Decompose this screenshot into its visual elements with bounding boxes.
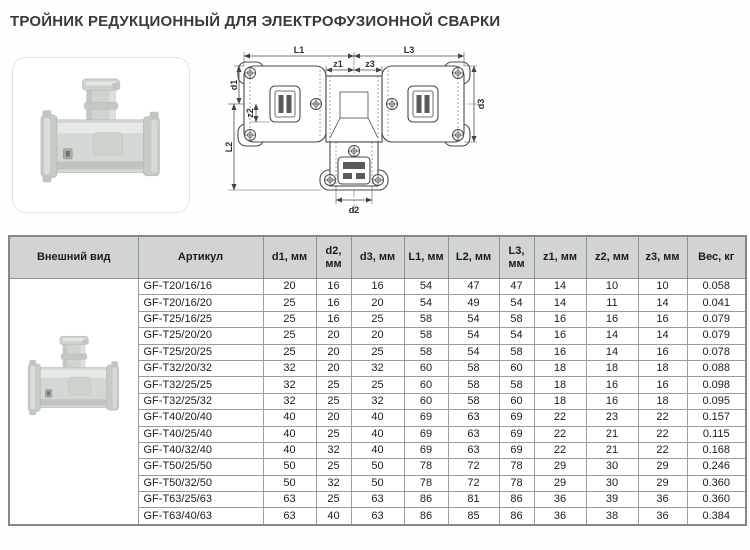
value-cell: 78 (404, 459, 448, 475)
column-header-article: Артикул (138, 236, 263, 279)
value-cell: 58 (404, 328, 448, 344)
value-cell: 25 (316, 393, 351, 409)
value-cell: 20 (316, 328, 351, 344)
value-cell: 16 (638, 311, 687, 327)
value-cell: 38 (586, 508, 638, 525)
value-cell: 36 (534, 508, 586, 525)
article-cell: GF-T63/40/63 (138, 508, 263, 525)
value-cell: 36 (534, 492, 586, 508)
value-cell: 49 (448, 295, 499, 311)
dim-label-z1: z1 (333, 59, 343, 69)
value-cell: 0.115 (687, 426, 746, 442)
product-photo-small (22, 333, 126, 425)
value-cell: 58 (404, 344, 448, 360)
value-cell: 63 (448, 426, 499, 442)
value-cell: 18 (586, 360, 638, 376)
value-cell: 63 (448, 410, 499, 426)
value-cell: 32 (316, 442, 351, 458)
value-cell: 16 (534, 311, 586, 327)
value-cell: 54 (448, 328, 499, 344)
value-cell: 32 (351, 393, 404, 409)
dim-label-l3: L3 (404, 46, 415, 55)
value-cell: 69 (404, 426, 448, 442)
value-cell: 25 (351, 344, 404, 360)
value-cell: 10 (586, 279, 638, 295)
value-cell: 29 (534, 459, 586, 475)
value-cell: 58 (499, 377, 534, 393)
value-cell: 50 (263, 459, 316, 475)
value-cell: 47 (448, 279, 499, 295)
value-cell: 25 (263, 344, 316, 360)
value-cell: 60 (404, 377, 448, 393)
value-cell: 25 (263, 328, 316, 344)
value-cell: 63 (263, 508, 316, 525)
value-cell: 16 (638, 377, 687, 393)
value-cell: 86 (404, 492, 448, 508)
value-cell: 69 (499, 426, 534, 442)
page-title: ТРОЙНИК РЕДУКЦИОННЫЙ ДЛЯ ЭЛЕКТРОФУЗИОННО… (10, 13, 500, 30)
value-cell: 30 (586, 475, 638, 491)
value-cell: 25 (316, 492, 351, 508)
table-row: GF-T20/16/162016165447471410100.058 (9, 279, 746, 295)
value-cell: 54 (448, 311, 499, 327)
value-cell: 29 (534, 475, 586, 491)
value-cell: 16 (316, 279, 351, 295)
value-cell: 72 (448, 459, 499, 475)
value-cell: 69 (499, 410, 534, 426)
technical-drawing: L1 L3 z1 z3 d1 z2 d3 L2 d2 (222, 46, 486, 218)
value-cell: 32 (351, 360, 404, 376)
table-body: GF-T20/16/162016165447471410100.058GF-T2… (9, 279, 746, 525)
value-cell: 58 (499, 311, 534, 327)
value-cell: 36 (638, 508, 687, 525)
dim-label-d2: d2 (349, 205, 360, 215)
value-cell: 14 (586, 344, 638, 360)
value-cell: 58 (448, 377, 499, 393)
value-cell: 18 (534, 360, 586, 376)
value-cell: 25 (316, 377, 351, 393)
value-cell: 32 (263, 377, 316, 393)
value-cell: 16 (586, 377, 638, 393)
value-cell: 20 (316, 344, 351, 360)
article-cell: GF-T20/16/20 (138, 295, 263, 311)
value-cell: 32 (263, 360, 316, 376)
value-cell: 22 (534, 410, 586, 426)
column-header-appearance: Внешний вид (9, 236, 138, 279)
value-cell: 16 (586, 311, 638, 327)
value-cell: 25 (351, 311, 404, 327)
value-cell: 21 (586, 426, 638, 442)
value-cell: 25 (263, 311, 316, 327)
column-header-l1: L1, мм (404, 236, 448, 279)
value-cell: 0.041 (687, 295, 746, 311)
value-cell: 32 (263, 393, 316, 409)
value-cell: 40 (351, 426, 404, 442)
value-cell: 21 (586, 442, 638, 458)
value-cell: 22 (638, 442, 687, 458)
value-cell: 36 (638, 492, 687, 508)
value-cell: 63 (448, 442, 499, 458)
value-cell: 16 (586, 393, 638, 409)
dim-label-d1: d1 (229, 80, 239, 91)
value-cell: 72 (448, 475, 499, 491)
product-photo-box (12, 57, 190, 213)
value-cell: 0.058 (687, 279, 746, 295)
dim-label-l2: L2 (224, 142, 234, 153)
value-cell: 16 (534, 328, 586, 344)
value-cell: 11 (586, 295, 638, 311)
value-cell: 0.360 (687, 492, 746, 508)
column-header-d2: d2, мм (316, 236, 351, 279)
article-cell: GF-T50/25/50 (138, 459, 263, 475)
value-cell: 60 (404, 360, 448, 376)
value-cell: 16 (316, 295, 351, 311)
value-cell: 50 (263, 475, 316, 491)
value-cell: 0.098 (687, 377, 746, 393)
value-cell: 60 (499, 393, 534, 409)
value-cell: 0.157 (687, 410, 746, 426)
value-cell: 40 (263, 410, 316, 426)
value-cell: 63 (351, 508, 404, 525)
value-cell: 54 (499, 295, 534, 311)
article-cell: GF-T50/32/50 (138, 475, 263, 491)
value-cell: 50 (351, 475, 404, 491)
dim-label-l1: L1 (294, 46, 305, 55)
value-cell: 20 (351, 295, 404, 311)
value-cell: 16 (534, 344, 586, 360)
value-cell: 40 (263, 442, 316, 458)
value-cell: 25 (316, 459, 351, 475)
value-cell: 54 (404, 295, 448, 311)
value-cell: 20 (263, 279, 316, 295)
value-cell: 32 (316, 475, 351, 491)
value-cell: 25 (263, 295, 316, 311)
dim-label-z2: z2 (245, 108, 255, 118)
value-cell: 50 (351, 459, 404, 475)
dim-label-d3: d3 (476, 99, 486, 110)
value-cell: 22 (638, 426, 687, 442)
value-cell: 10 (638, 279, 687, 295)
value-cell: 18 (638, 393, 687, 409)
value-cell: 58 (404, 311, 448, 327)
value-cell: 14 (534, 295, 586, 311)
value-cell: 40 (263, 426, 316, 442)
column-header-l2: L2, мм (448, 236, 499, 279)
value-cell: 0.384 (687, 508, 746, 525)
value-cell: 14 (534, 279, 586, 295)
value-cell: 30 (586, 459, 638, 475)
value-cell: 69 (404, 410, 448, 426)
value-cell: 54 (499, 328, 534, 344)
value-cell: 69 (499, 442, 534, 458)
value-cell: 20 (316, 360, 351, 376)
value-cell: 29 (638, 459, 687, 475)
article-cell: GF-T20/16/16 (138, 279, 263, 295)
column-header-d1: d1, мм (263, 236, 316, 279)
value-cell: 86 (404, 508, 448, 525)
value-cell: 14 (638, 295, 687, 311)
value-cell: 39 (586, 492, 638, 508)
value-cell: 14 (586, 328, 638, 344)
value-cell: 0.360 (687, 475, 746, 491)
appearance-cell (9, 279, 138, 525)
value-cell: 40 (316, 508, 351, 525)
value-cell: 86 (499, 508, 534, 525)
article-cell: GF-T25/20/20 (138, 328, 263, 344)
value-cell: 54 (404, 279, 448, 295)
article-cell: GF-T40/20/40 (138, 410, 263, 426)
value-cell: 47 (499, 279, 534, 295)
column-header-z3: z3, мм (638, 236, 687, 279)
article-cell: GF-T32/20/32 (138, 360, 263, 376)
article-cell: GF-T25/16/25 (138, 311, 263, 327)
value-cell: 63 (351, 492, 404, 508)
value-cell: 20 (351, 328, 404, 344)
value-cell: 0.078 (687, 344, 746, 360)
value-cell: 25 (316, 426, 351, 442)
value-cell: 23 (586, 410, 638, 426)
value-cell: 78 (404, 475, 448, 491)
value-cell: 81 (448, 492, 499, 508)
spec-table: Внешний вид Артикул d1, мм d2, мм d3, мм… (8, 235, 747, 526)
value-cell: 60 (499, 360, 534, 376)
value-cell: 22 (638, 410, 687, 426)
value-cell: 0.168 (687, 442, 746, 458)
article-cell: GF-T40/32/40 (138, 442, 263, 458)
value-cell: 58 (448, 360, 499, 376)
column-header-weight: Вес, кг (687, 236, 746, 279)
value-cell: 0.095 (687, 393, 746, 409)
value-cell: 69 (404, 442, 448, 458)
column-header-l3: L3, мм (499, 236, 534, 279)
column-header-d3: d3, мм (351, 236, 404, 279)
value-cell: 60 (404, 393, 448, 409)
value-cell: 29 (638, 475, 687, 491)
value-cell: 18 (638, 360, 687, 376)
value-cell: 0.088 (687, 360, 746, 376)
value-cell: 58 (499, 344, 534, 360)
article-cell: GF-T63/25/63 (138, 492, 263, 508)
value-cell: 25 (351, 377, 404, 393)
value-cell: 78 (499, 475, 534, 491)
value-cell: 16 (316, 311, 351, 327)
value-cell: 0.246 (687, 459, 746, 475)
article-cell: GF-T32/25/32 (138, 393, 263, 409)
article-cell: GF-T32/25/25 (138, 377, 263, 393)
dim-label-z3: z3 (365, 59, 375, 69)
product-photo-large (33, 75, 169, 195)
column-header-z1: z1, мм (534, 236, 586, 279)
value-cell: 40 (351, 410, 404, 426)
value-cell: 20 (316, 410, 351, 426)
value-cell: 86 (499, 492, 534, 508)
value-cell: 0.079 (687, 328, 746, 344)
value-cell: 85 (448, 508, 499, 525)
value-cell: 54 (448, 344, 499, 360)
value-cell: 16 (351, 279, 404, 295)
value-cell: 58 (448, 393, 499, 409)
value-cell: 22 (534, 426, 586, 442)
value-cell: 18 (534, 393, 586, 409)
value-cell: 40 (351, 442, 404, 458)
value-cell: 0.079 (687, 311, 746, 327)
value-cell: 63 (263, 492, 316, 508)
value-cell: 14 (638, 328, 687, 344)
value-cell: 16 (638, 344, 687, 360)
value-cell: 78 (499, 459, 534, 475)
catalog-page: ТРОЙНИК РЕДУКЦИОННЫЙ ДЛЯ ЭЛЕКТРОФУЗИОННО… (0, 0, 750, 550)
value-cell: 18 (534, 377, 586, 393)
value-cell: 22 (534, 442, 586, 458)
table-header-row: Внешний вид Артикул d1, мм d2, мм d3, мм… (9, 236, 746, 279)
article-cell: GF-T25/20/25 (138, 344, 263, 360)
article-cell: GF-T40/25/40 (138, 426, 263, 442)
column-header-z2: z2, мм (586, 236, 638, 279)
